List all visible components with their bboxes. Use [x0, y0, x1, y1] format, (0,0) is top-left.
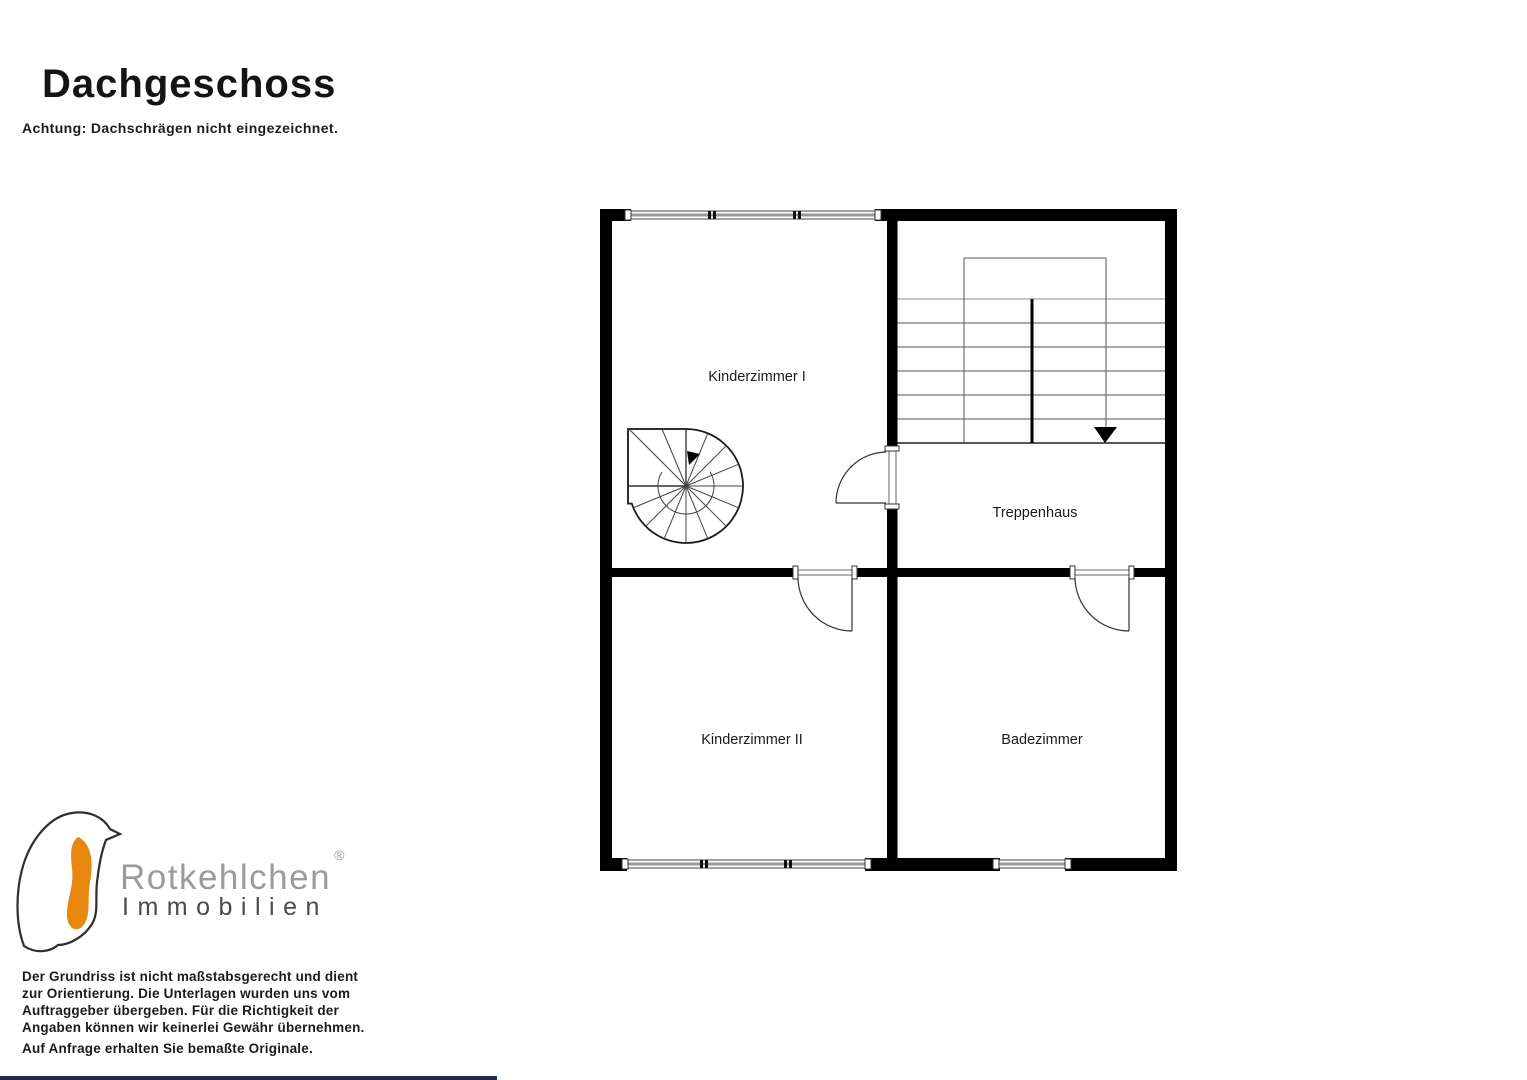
stair-down-arrow-icon — [1094, 427, 1117, 443]
window-bottom-kinderzimmer2 — [622, 859, 871, 869]
wall-middle-vertical-segment — [887, 221, 898, 448]
room-label-kinderzimmer-1: Kinderzimmer I — [708, 369, 806, 385]
wall-top-segment — [875, 209, 1177, 221]
disclaimer-text: Der Grundriss ist nicht maßstabsgerecht … — [22, 968, 364, 1036]
robin-bird-icon — [14, 806, 129, 958]
bottom-accent-bar — [0, 1076, 497, 1080]
door-frame-kinderzimmer1-treppenhaus — [885, 446, 899, 509]
disclaimer-line: Der Grundriss ist nicht maßstabsgerecht … — [22, 968, 364, 985]
wall-bottom-segment — [865, 858, 1000, 871]
door-frame-kinderzimmer2 — [793, 566, 857, 579]
registered-trademark-symbol: ® — [334, 847, 346, 863]
wall-bottom-segment — [1065, 858, 1177, 871]
stair-handrail-line — [1031, 299, 1034, 443]
room-label-kinderzimmer-2: Kinderzimmer II — [701, 732, 803, 748]
door-swing-arc — [798, 577, 852, 631]
wall-middle-horizontal-segment — [1132, 568, 1165, 577]
wall-middle-horizontal-segment — [897, 568, 1072, 577]
door-kinderzimmer2 — [798, 577, 852, 631]
door-frames — [793, 446, 1134, 579]
disclaimer-line: zur Orientierung. Die Unterlagen wurden … — [22, 985, 364, 1002]
wall-middle-horizontal-segment — [855, 568, 887, 577]
window-top-kinderzimmer1 — [625, 210, 881, 220]
wall-right — [1165, 209, 1177, 871]
straight-stair — [897, 258, 1165, 443]
room-label-badezimmer: Badezimmer — [1001, 732, 1083, 748]
door-badezimmer — [1075, 577, 1129, 631]
originals-note-text: Auf Anfrage erhalten Sie bemaßte Origina… — [22, 1041, 313, 1056]
robin-outline — [18, 812, 121, 951]
brand-name: Rotkehlchen® — [120, 858, 343, 898]
wall-left — [600, 209, 612, 871]
door-kinderzimmer1-treppenhaus — [836, 452, 887, 503]
spiral-stair — [628, 429, 743, 543]
wall-middle-horizontal-segment — [612, 568, 795, 577]
door-swing-arc — [836, 452, 887, 503]
disclaimer-line: Angaben können wir keinerlei Gewähr über… — [22, 1019, 364, 1036]
doors — [798, 452, 1129, 631]
room-label-treppenhaus: Treppenhaus — [993, 505, 1078, 521]
robin-breast-patch — [67, 837, 92, 929]
brand-subtitle: Immobilien — [122, 893, 328, 922]
disclaimer-line: Auftraggeber übergeben. Für die Richtigk… — [22, 1002, 364, 1019]
brand-name-text: Rotkehlchen — [120, 858, 331, 897]
door-swing-arc — [1075, 577, 1129, 631]
window-bottom-badezimmer — [993, 859, 1071, 869]
door-frame-badezimmer — [1070, 566, 1134, 579]
wall-middle-vertical-segment — [887, 506, 898, 858]
